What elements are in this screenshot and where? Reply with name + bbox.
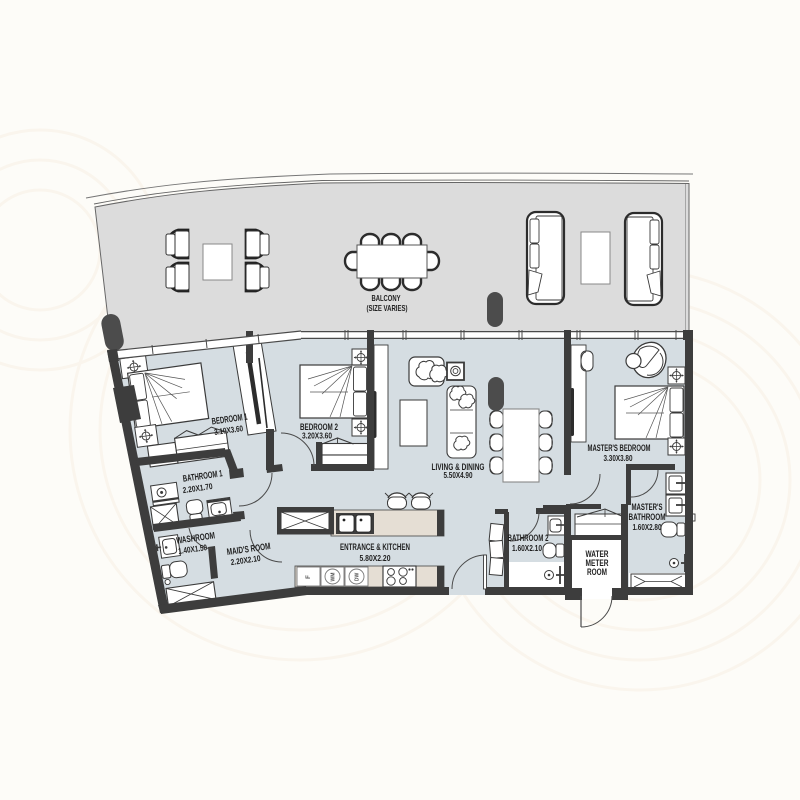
svg-text:1.60X2.10: 1.60X2.10 <box>512 543 542 553</box>
svg-text:BALCONY: BALCONY <box>372 293 401 303</box>
svg-text:BATHROOM: BATHROOM <box>629 512 666 522</box>
svg-text:3.20X3.60: 3.20X3.60 <box>302 431 332 441</box>
svg-text:5.50X4.90: 5.50X4.90 <box>444 470 473 480</box>
svg-text:WM: WM <box>331 573 337 582</box>
svg-text:BATHROOM 2: BATHROOM 2 <box>508 533 549 543</box>
svg-text:MASTER'S BEDROOM: MASTER'S BEDROOM <box>588 443 651 453</box>
svg-text:ENTRANCE & KITCHEN: ENTRANCE & KITCHEN <box>340 542 410 552</box>
svg-text:1.60X2.80: 1.60X2.80 <box>633 522 662 532</box>
svg-text:5.80X2.20: 5.80X2.20 <box>360 553 391 563</box>
svg-text:F: F <box>306 575 312 579</box>
svg-text:3.30X3.80: 3.30X3.80 <box>604 453 633 463</box>
svg-text:ROOM: ROOM <box>587 567 607 577</box>
svg-text:(SIZE VARIES): (SIZE VARIES) <box>367 303 408 313</box>
svg-text:DW: DW <box>355 573 361 582</box>
svg-text:MASTER'S: MASTER'S <box>632 502 663 512</box>
